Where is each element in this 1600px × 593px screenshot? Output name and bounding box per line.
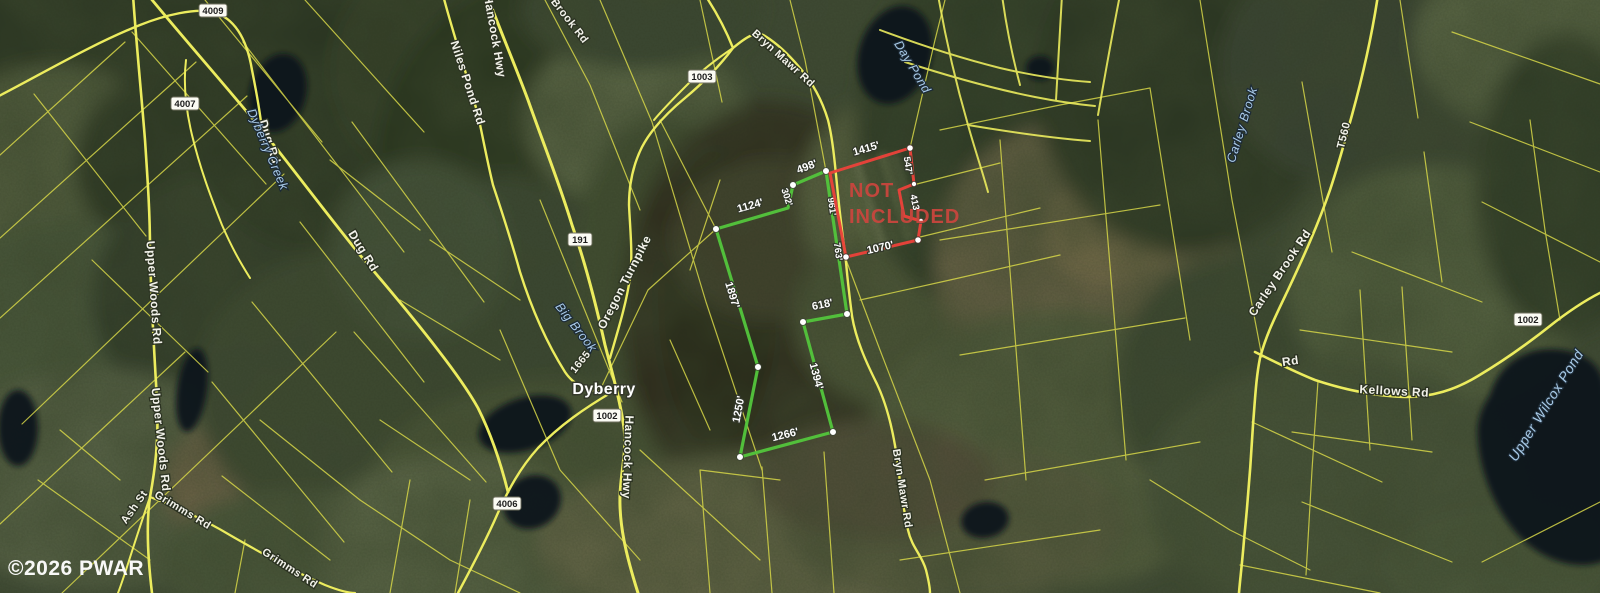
route-shield-label: 4009 xyxy=(202,6,223,17)
watermark: ©2026 PWAR xyxy=(8,557,144,580)
route-shield: 1002 xyxy=(1514,313,1542,326)
road-label: Rd xyxy=(1281,353,1300,369)
road-label: Hancock Hwy xyxy=(620,415,637,499)
route-shield-label: 1002 xyxy=(596,411,617,422)
route-shield-label: 1003 xyxy=(691,72,712,83)
route-shield: 1002 xyxy=(593,409,621,422)
not-included-label-line1: NOT xyxy=(849,180,894,202)
satellite-map: 498' 302' 1124' 1897' 1250' 1266' 1394' … xyxy=(0,0,1600,593)
map-image: 498' 302' 1124' 1897' 1250' 1266' 1394' … xyxy=(0,0,1600,593)
route-shield-label: 1002 xyxy=(1517,315,1538,326)
route-shield: 1003 xyxy=(688,70,716,83)
route-shield-label: 4006 xyxy=(496,499,517,510)
route-shield: 4007 xyxy=(171,97,199,110)
town-label: Dyberry xyxy=(572,381,635,398)
route-shield: 4009 xyxy=(199,4,227,17)
route-shield: 4006 xyxy=(493,497,521,510)
route-shield-label: 191 xyxy=(572,235,589,246)
not-included-label-line2: INCLUDED xyxy=(849,206,960,228)
route-shield: 191 xyxy=(568,233,592,246)
route-shield-label: 4007 xyxy=(174,99,195,110)
